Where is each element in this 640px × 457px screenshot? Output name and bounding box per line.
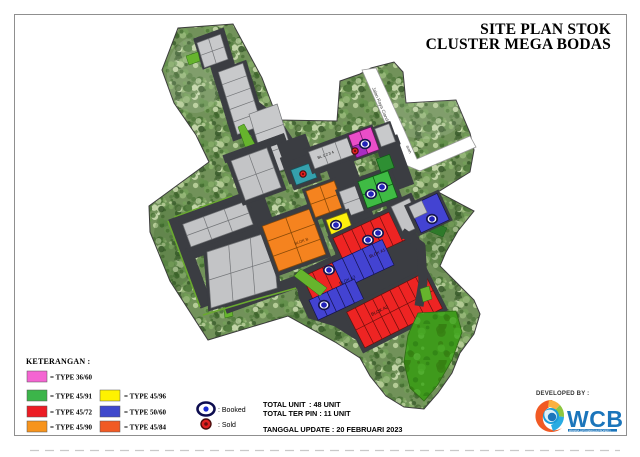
svg-text:TANGGAL UPDATE : 20 FEBRUARI 2: TANGGAL UPDATE : 20 FEBRUARI 2023: [263, 425, 402, 434]
svg-text:KETERANGAN :: KETERANGAN :: [26, 357, 90, 366]
svg-text:= TYPE 45/84: = TYPE 45/84: [124, 424, 166, 432]
svg-text:: 48 UNIT: : 48 UNIT: [309, 400, 341, 409]
svg-text:DEVELOPED BY :: DEVELOPED BY :: [536, 391, 589, 397]
svg-text:TOTAL TER PIN : 11 UNIT: TOTAL TER PIN : 11 UNIT: [263, 409, 351, 418]
svg-text:WCB: WCB: [567, 406, 623, 432]
svg-text:= TYPE 50/60: = TYPE 50/60: [124, 409, 166, 417]
svg-text:= TYPE 45/96: = TYPE 45/96: [124, 393, 166, 401]
svg-text:: Booked: : Booked: [218, 407, 246, 414]
svg-text:= TYPE 36/60: = TYPE 36/60: [50, 374, 92, 382]
svg-text:: Sold: : Sold: [218, 422, 236, 429]
svg-text:= TYPE 45/72: = TYPE 45/72: [50, 409, 92, 417]
svg-text:= TYPE 45/91: = TYPE 45/91: [50, 393, 92, 401]
svg-text:WAHANA CIPTA BANGUN PROPERTI: WAHANA CIPTA BANGUN PROPERTI: [569, 430, 611, 433]
svg-text:TOTAL UNIT: TOTAL UNIT: [263, 400, 306, 409]
svg-text:CLUSTER MEGA BODAS: CLUSTER MEGA BODAS: [426, 36, 611, 53]
svg-text:= TYPE 45/90: = TYPE 45/90: [50, 424, 92, 432]
